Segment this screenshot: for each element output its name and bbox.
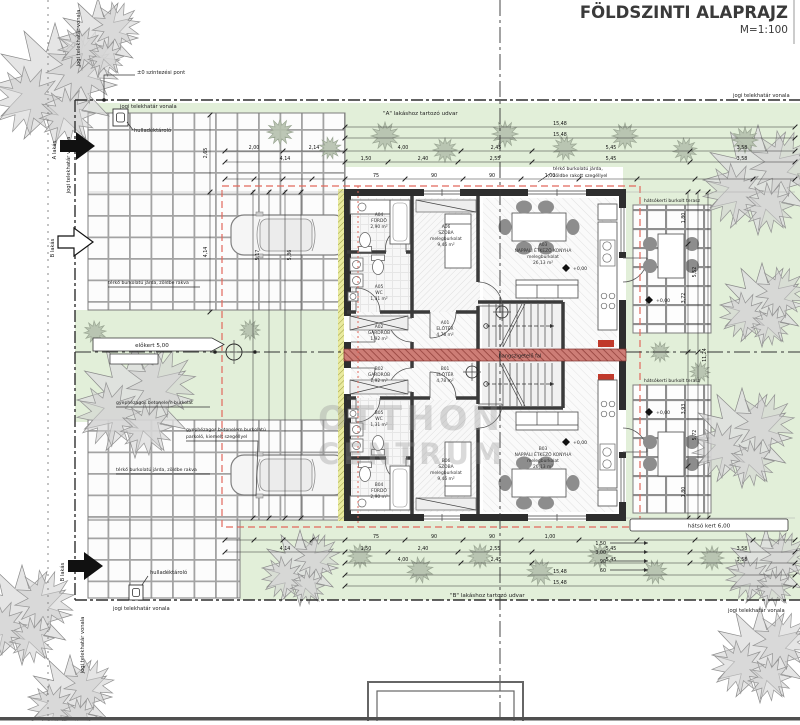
- parking-callout-1: gyephézagos betonelem burkolatú: [186, 426, 266, 433]
- svg-text:26,13 m²: 26,13 m²: [533, 260, 553, 266]
- svg-text:75: 75: [373, 173, 379, 179]
- boundary-label-top-right: jogi telekhatár vonala: [732, 92, 790, 99]
- svg-text:4,78 m²: 4,78 m²: [436, 332, 453, 338]
- svg-text:11,24: 11,24: [702, 348, 708, 362]
- waste-label-top: hulladéktároló: [134, 127, 171, 134]
- svg-text:75: 75: [373, 534, 379, 540]
- svg-text:3,58: 3,58: [737, 145, 748, 151]
- walkway-paving-south: [88, 520, 240, 598]
- svg-text:2,00: 2,00: [249, 145, 260, 151]
- svg-text:26,13 m²: 26,13 m²: [533, 464, 553, 470]
- svg-text:3,72: 3,72: [681, 293, 687, 304]
- svg-text:2,55: 2,55: [490, 546, 501, 552]
- walkway-callout-1: térkő burkolatú járda,: [553, 165, 603, 172]
- svg-text:2,65: 2,65: [203, 148, 209, 159]
- svg-text:3,00: 3,00: [595, 550, 606, 556]
- svg-text:B01: B01: [441, 366, 450, 372]
- svg-text:WC: WC: [375, 290, 382, 296]
- svg-text:1,50: 1,50: [361, 546, 372, 552]
- terrace-a-label: hátsókerti burkolt terasz: [644, 197, 701, 204]
- svg-text:2,14: 2,14: [309, 145, 320, 151]
- svg-text:1,50: 1,50: [361, 156, 372, 162]
- walkway-label-2: térkő burkolatú járda, zöldbe rakva: [116, 466, 197, 473]
- level-marker-b: +0,00: [573, 440, 587, 446]
- floor-plan-page: jogi telekhatár vonala jogi telekhatár v…: [0, 0, 800, 721]
- svg-text:90: 90: [431, 173, 437, 179]
- level-point-label: ±0 szintezési pont: [137, 69, 185, 76]
- svg-text:A03: A03: [539, 242, 548, 248]
- boundary-label-bottom-right: jogi telekhatár vonala: [727, 607, 785, 614]
- svg-text:GARDRÓB: GARDRÓB: [368, 329, 390, 336]
- boundary-label-vertical-bottom: jogi telekhatár vonala: [79, 617, 86, 675]
- svg-text:15,48: 15,48: [553, 121, 567, 127]
- svg-text:2,90 m²: 2,90 m²: [370, 224, 387, 230]
- paving-label: gyephézagos betonelem burkolat: [116, 399, 193, 406]
- svg-text:A01: A01: [441, 320, 450, 326]
- svg-text:15,48: 15,48: [553, 132, 567, 138]
- svg-text:1,50: 1,50: [595, 541, 606, 547]
- rear-garden-label: hátsó kert 6,00: [688, 523, 731, 530]
- svg-text:2,45: 2,45: [491, 145, 502, 151]
- scale-label: M=1:100: [740, 24, 788, 36]
- svg-text:9,46 m²: 9,46 m²: [437, 242, 454, 248]
- svg-text:1,92 m²: 1,92 m²: [370, 378, 387, 384]
- arrow-b-label: B lakás: [49, 238, 56, 257]
- svg-text:melegburkolat: melegburkolat: [527, 458, 559, 464]
- svg-text:5,36: 5,36: [287, 250, 293, 261]
- walkway-callout-2: zöldbe rakott szegéllyel: [553, 172, 607, 179]
- svg-text:3,93: 3,93: [681, 404, 687, 415]
- svg-text:1,31 m²: 1,31 m²: [370, 296, 387, 302]
- level-marker-a: +0,00: [573, 266, 587, 272]
- svg-text:4,14: 4,14: [280, 156, 291, 162]
- svg-text:4,00: 4,00: [398, 557, 409, 563]
- page-title: FÖLDSZINTI ALAPRAJZ: [580, 3, 788, 22]
- parking-callout-2: parkoló, kiemelt szegéllyel: [186, 433, 247, 440]
- svg-text:5,17: 5,17: [255, 250, 261, 261]
- svg-text:4,78 m²: 4,78 m²: [436, 378, 453, 384]
- terrace-b-label: hátsókerti burkolt terasz: [644, 377, 701, 384]
- walkway-label-1: térkő burkolatú járda, zöldbe rakva: [108, 279, 189, 286]
- svg-text:5,45: 5,45: [606, 546, 617, 552]
- bottom-frame-line: [0, 717, 800, 721]
- terrace-a-level: +0,00: [656, 298, 670, 304]
- svg-text:B03: B03: [539, 446, 548, 452]
- courtyard-b-label: "B" lakáshoz tartozó udvar: [450, 592, 525, 599]
- arrow-b2-label: B lakás: [59, 562, 66, 581]
- svg-text:2,40: 2,40: [418, 546, 429, 552]
- svg-text:1,80: 1,80: [681, 213, 687, 224]
- svg-text:1,80: 1,80: [681, 487, 687, 498]
- svg-text:B04: B04: [375, 482, 384, 488]
- svg-text:90: 90: [431, 534, 437, 540]
- insulation-strip: [338, 189, 344, 521]
- svg-text:2,40: 2,40: [418, 156, 429, 162]
- svg-text:FÜRDŐ: FÜRDŐ: [371, 487, 387, 494]
- svg-text:4,00: 4,00: [398, 145, 409, 151]
- svg-text:FÜRDŐ: FÜRDŐ: [371, 217, 387, 224]
- building: hangszigetelő fal +0,00: [338, 189, 647, 521]
- svg-text:1,00: 1,00: [545, 534, 556, 540]
- terrace-b-level: +0,00: [656, 410, 670, 416]
- svg-text:3,58: 3,58: [737, 546, 748, 552]
- svg-text:A05: A05: [375, 284, 384, 290]
- party-wall-label: hangszigetelő fal: [499, 354, 542, 360]
- svg-text:GARDRÓB: GARDRÓB: [368, 371, 390, 378]
- svg-text:melegburkolat: melegburkolat: [430, 236, 462, 242]
- svg-text:A06: A06: [442, 224, 451, 230]
- boundary-label-bottom-left: jogi telekhatár vonala: [112, 605, 170, 612]
- svg-text:B02: B02: [375, 366, 384, 372]
- boundary-label-vertical-top: jogi telekhatár vonala: [75, 10, 82, 68]
- svg-text:3,58: 3,58: [737, 156, 748, 162]
- svg-text:9,46 m²: 9,46 m²: [437, 476, 454, 482]
- svg-text:5,72: 5,72: [692, 430, 698, 441]
- svg-text:5,52: 5,52: [692, 267, 698, 278]
- svg-text:60: 60: [600, 568, 606, 574]
- svg-text:90: 90: [489, 173, 495, 179]
- svg-text:melegburkolat: melegburkolat: [527, 254, 559, 260]
- arrow-a-label: A lakás: [51, 140, 58, 159]
- svg-text:4,14: 4,14: [203, 247, 209, 258]
- svg-text:15,48: 15,48: [553, 569, 567, 575]
- waste-label-bottom: hulladéktároló: [150, 569, 187, 576]
- svg-text:5,45: 5,45: [606, 557, 617, 563]
- svg-text:A02: A02: [375, 324, 384, 330]
- svg-text:2,45: 2,45: [491, 557, 502, 563]
- site-plan-drawing: jogi telekhatár vonala jogi telekhatár v…: [0, 0, 800, 721]
- svg-text:SZOBA: SZOBA: [438, 230, 453, 236]
- svg-text:2,90 m²: 2,90 m²: [370, 494, 387, 500]
- svg-text:1,92 m²: 1,92 m²: [370, 336, 387, 342]
- watermark: OTTHON CENTRUM: [318, 399, 506, 471]
- svg-text:15,48: 15,48: [553, 580, 567, 586]
- svg-text:90: 90: [600, 559, 606, 565]
- svg-text:OTTHON: OTTHON: [318, 399, 504, 439]
- svg-text:90: 90: [489, 534, 495, 540]
- svg-text:4,14: 4,14: [280, 546, 291, 552]
- svg-text:CENTRUM: CENTRUM: [318, 437, 506, 471]
- courtyard-a-label: "A" lakáshoz tartozó udvar: [383, 110, 458, 117]
- svg-text:3,58: 3,58: [737, 557, 748, 563]
- svg-text:5,45: 5,45: [606, 145, 617, 151]
- svg-text:A04: A04: [375, 212, 384, 218]
- front-garden-label: előkert 5,00: [135, 343, 169, 349]
- svg-text:2,55: 2,55: [490, 156, 501, 162]
- svg-text:5,45: 5,45: [606, 156, 617, 162]
